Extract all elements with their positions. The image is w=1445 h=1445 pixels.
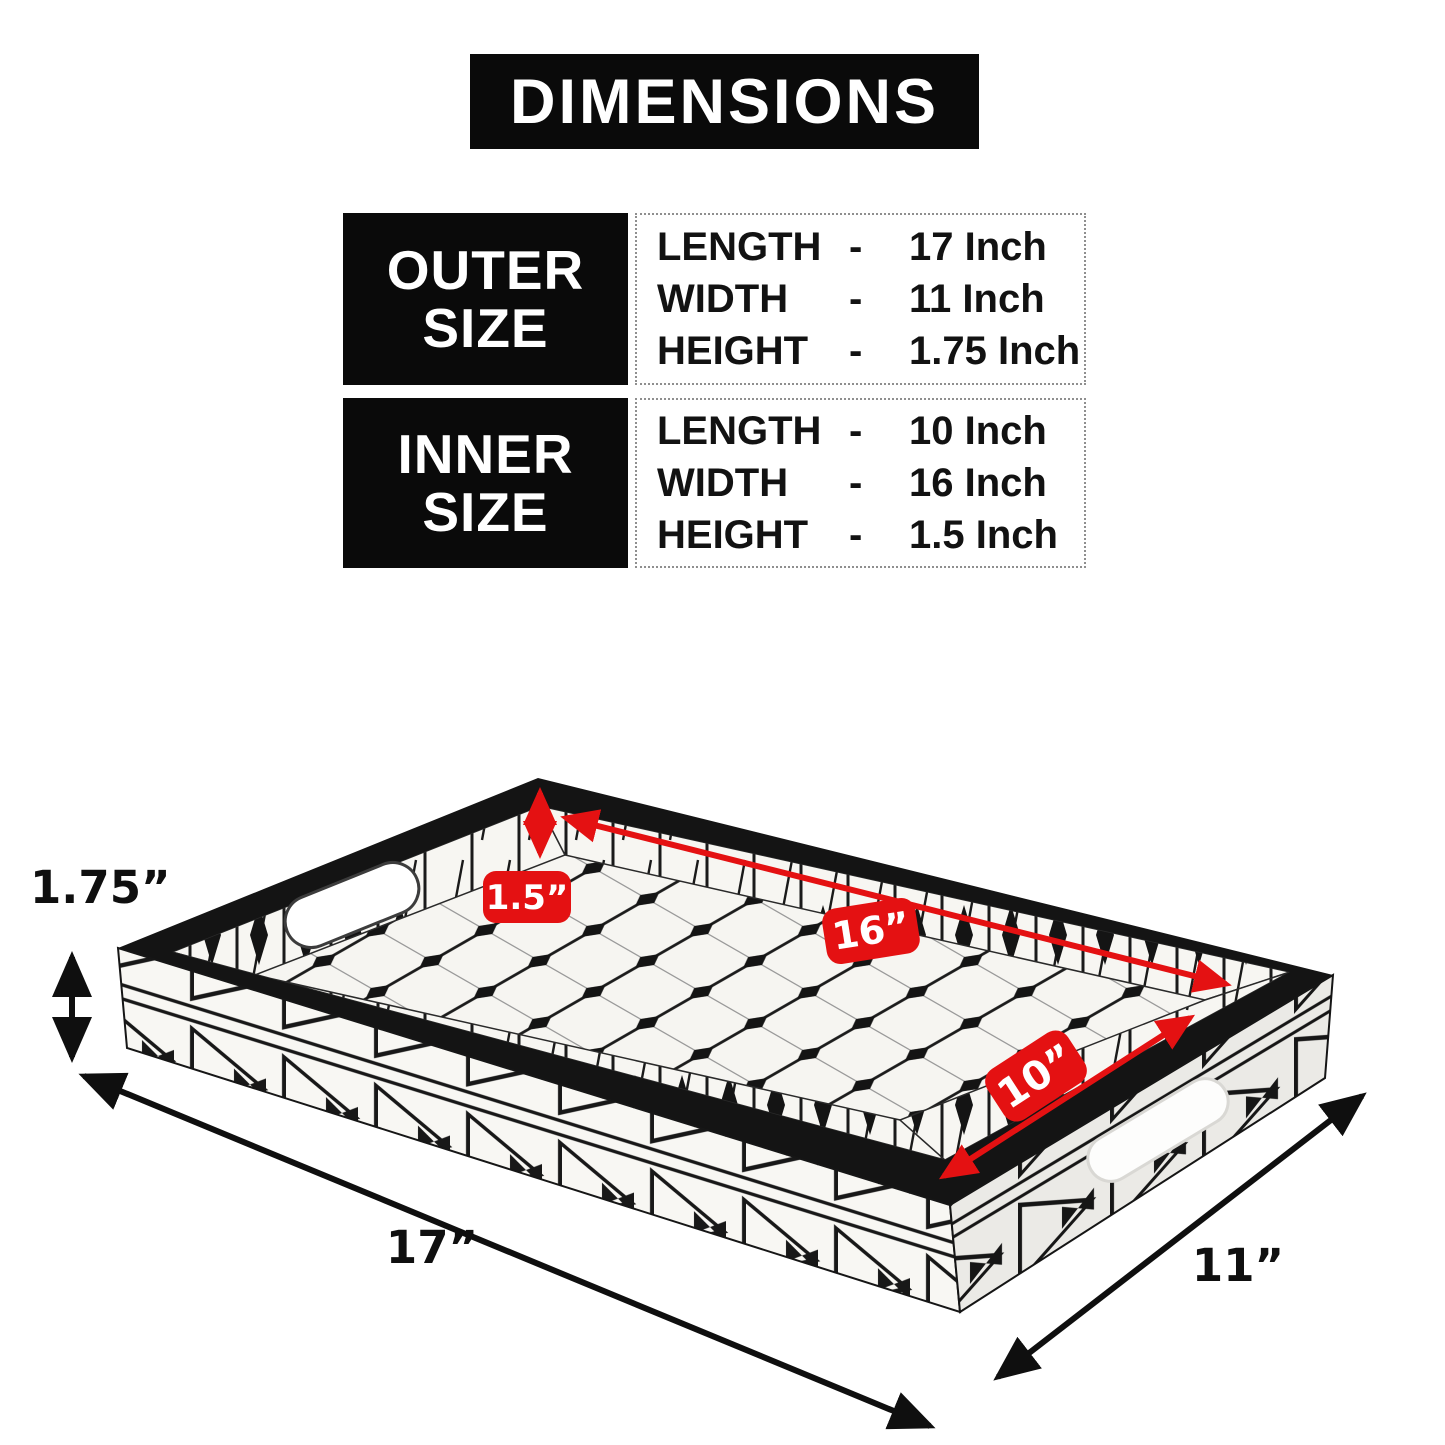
outer-height-value: 1.75”	[30, 861, 171, 914]
outer-length-value: 17”	[386, 1221, 478, 1274]
tray-illustration: 1.5” 16” 10” 1.75” 17” 11”	[0, 0, 1445, 1445]
inner-height-value: 1.5”	[486, 878, 569, 918]
outer-width-value: 11”	[1192, 1239, 1284, 1292]
product-dimensions-infographic: DIMENSIONS OUTER SIZE LENGTH - 17 Inch W…	[0, 0, 1445, 1445]
inner-height-label: 1.5”	[483, 871, 571, 923]
